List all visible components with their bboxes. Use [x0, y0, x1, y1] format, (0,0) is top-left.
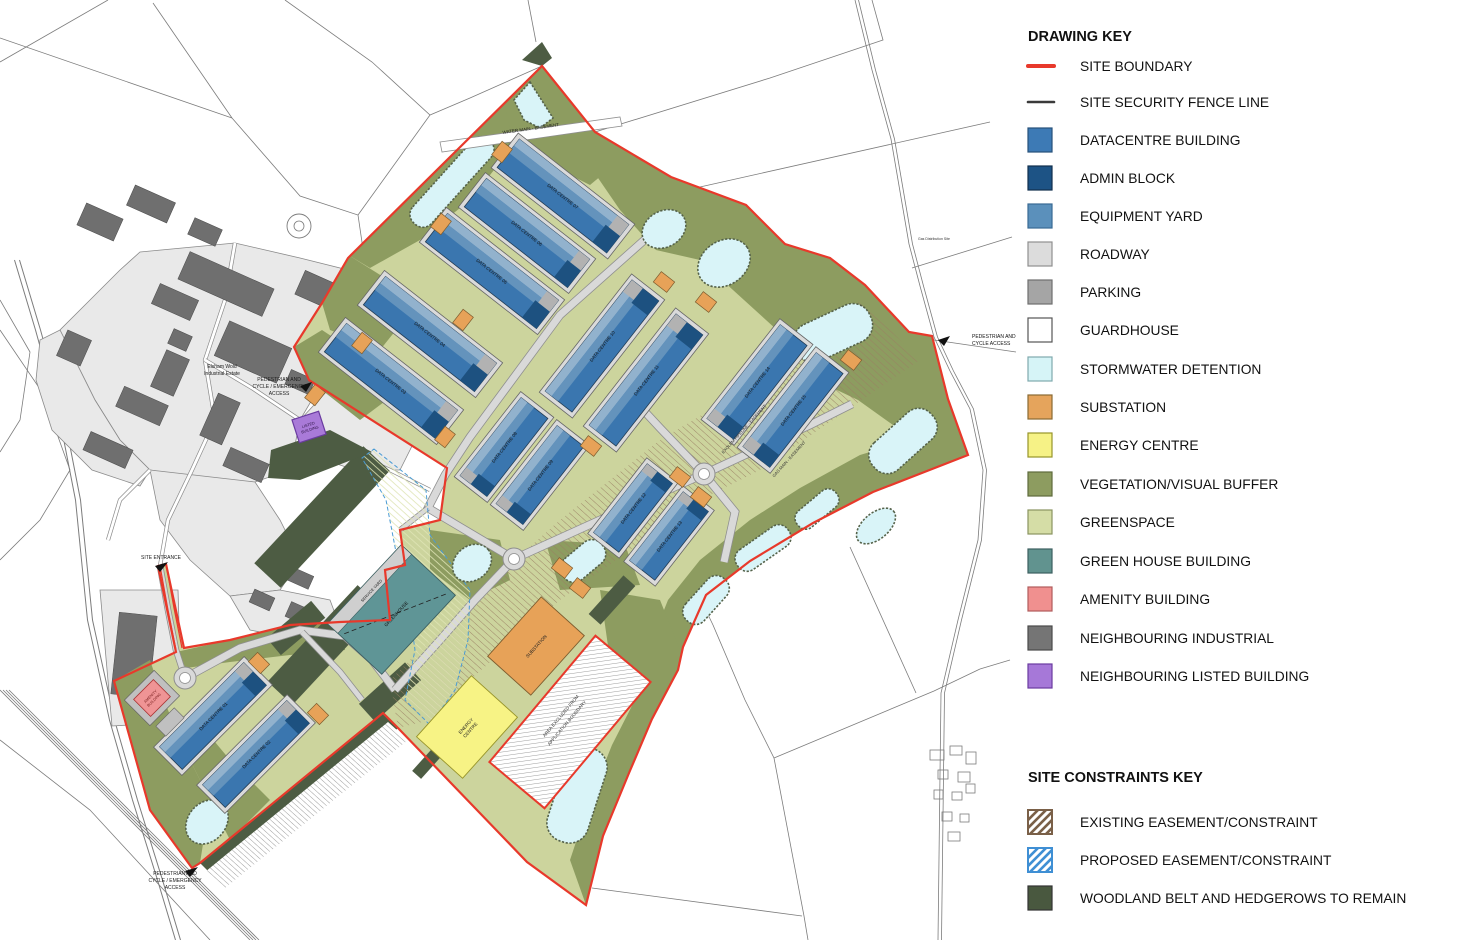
svg-text:GUARDHOUSE: GUARDHOUSE: [1080, 323, 1179, 338]
svg-text:GREEN HOUSE BUILDING: GREEN HOUSE BUILDING: [1080, 554, 1251, 569]
svg-text:SUBSTATION: SUBSTATION: [1080, 400, 1166, 415]
svg-text:CYCLE / EMERGENCY: CYCLE / EMERGENCY: [252, 384, 306, 390]
svg-text:DRAWING KEY: DRAWING KEY: [1028, 29, 1132, 45]
svg-text:CYCLE ACCESS: CYCLE ACCESS: [972, 341, 1011, 347]
svg-text:CYCLE / EMERGENCY: CYCLE / EMERGENCY: [148, 878, 202, 884]
svg-text:EQUIPMENT YARD: EQUIPMENT YARD: [1080, 209, 1203, 224]
svg-text:SITE SECURITY FENCE LINE: SITE SECURITY FENCE LINE: [1080, 95, 1269, 110]
svg-text:SITE CONSTRAINTS KEY: SITE CONSTRAINTS KEY: [1028, 770, 1203, 786]
svg-text:GREENSPACE: GREENSPACE: [1080, 515, 1175, 530]
svg-text:WOODLAND BELT AND HEDGEROWS TO: WOODLAND BELT AND HEDGEROWS TO REMAIN: [1080, 891, 1406, 906]
svg-text:PARKING: PARKING: [1080, 285, 1141, 300]
svg-text:VEGETATION/VISUAL BUFFER: VEGETATION/VISUAL BUFFER: [1080, 477, 1278, 492]
svg-text:STORMWATER DETENTION: STORMWATER DETENTION: [1080, 362, 1261, 377]
svg-text:ACCESS: ACCESS: [269, 391, 290, 397]
svg-text:SITE ENTRANCE: SITE ENTRANCE: [141, 555, 182, 561]
svg-text:NEIGHBOURING INDUSTRIAL: NEIGHBOURING INDUSTRIAL: [1080, 631, 1274, 646]
svg-text:PROPOSED EASEMENT/CONSTRAINT: PROPOSED EASEMENT/CONSTRAINT: [1080, 853, 1332, 868]
svg-text:ENERGY CENTRE: ENERGY CENTRE: [1080, 438, 1199, 453]
svg-text:ADMIN BLOCK: ADMIN BLOCK: [1080, 171, 1176, 186]
svg-text:ACCESS: ACCESS: [165, 885, 186, 891]
svg-text:Industrial Estate: Industrial Estate: [204, 371, 240, 377]
svg-text:SITE BOUNDARY: SITE BOUNDARY: [1080, 59, 1192, 74]
svg-text:PEDESTRIAN AND: PEDESTRIAN AND: [257, 377, 301, 383]
svg-text:PEDESTRIAN AND: PEDESTRIAN AND: [972, 334, 1016, 340]
svg-text:EXISTING EASEMENT/CONSTRAINT: EXISTING EASEMENT/CONSTRAINT: [1080, 815, 1318, 830]
svg-text:Elsham Wold: Elsham Wold: [207, 364, 237, 370]
svg-text:AMENITY BUILDING: AMENITY BUILDING: [1080, 592, 1210, 607]
svg-text:NEIGHBOURING LISTED BUILDING: NEIGHBOURING LISTED BUILDING: [1080, 669, 1309, 684]
svg-text:Gas Distribution Site: Gas Distribution Site: [918, 237, 950, 241]
svg-text:DATACENTRE BUILDING: DATACENTRE BUILDING: [1080, 133, 1240, 148]
svg-text:ROADWAY: ROADWAY: [1080, 247, 1150, 262]
